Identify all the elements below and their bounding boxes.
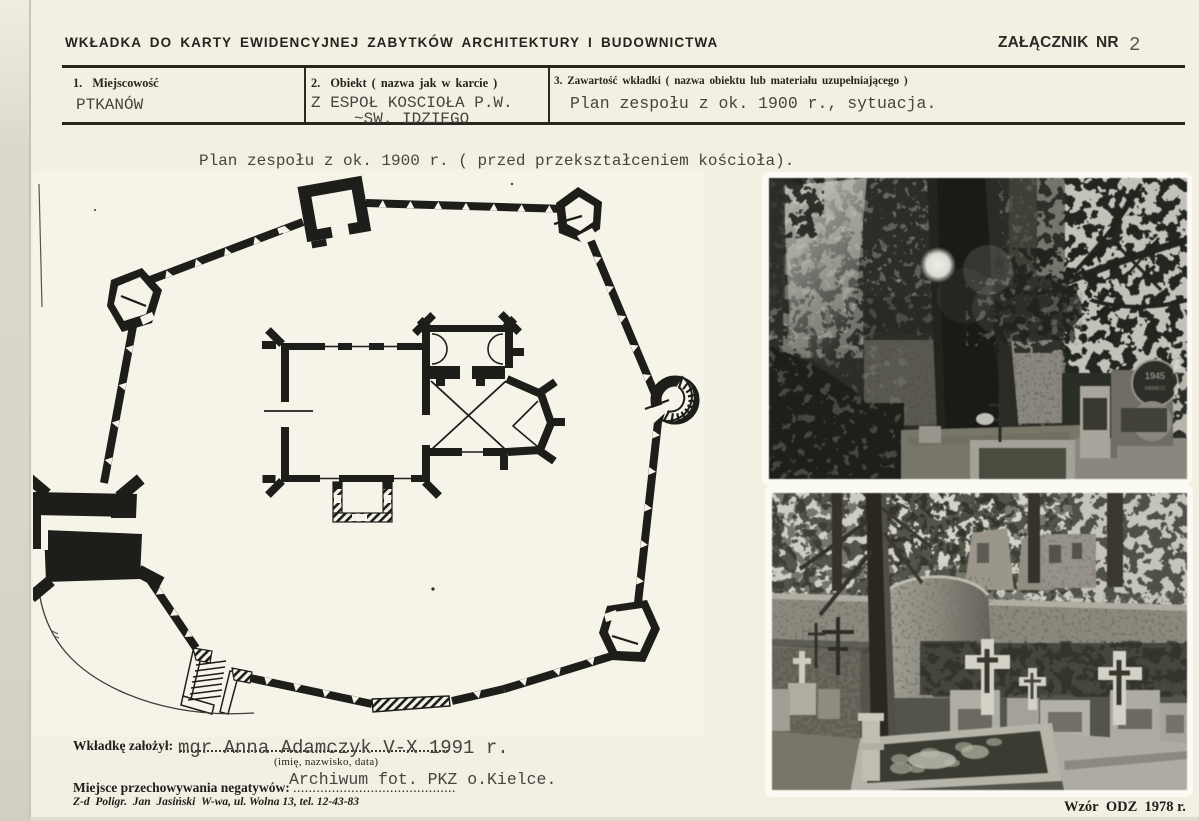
svg-text:1945: 1945 [1145,371,1165,381]
svg-text:PAMIECI: PAMIECI [1145,386,1165,392]
